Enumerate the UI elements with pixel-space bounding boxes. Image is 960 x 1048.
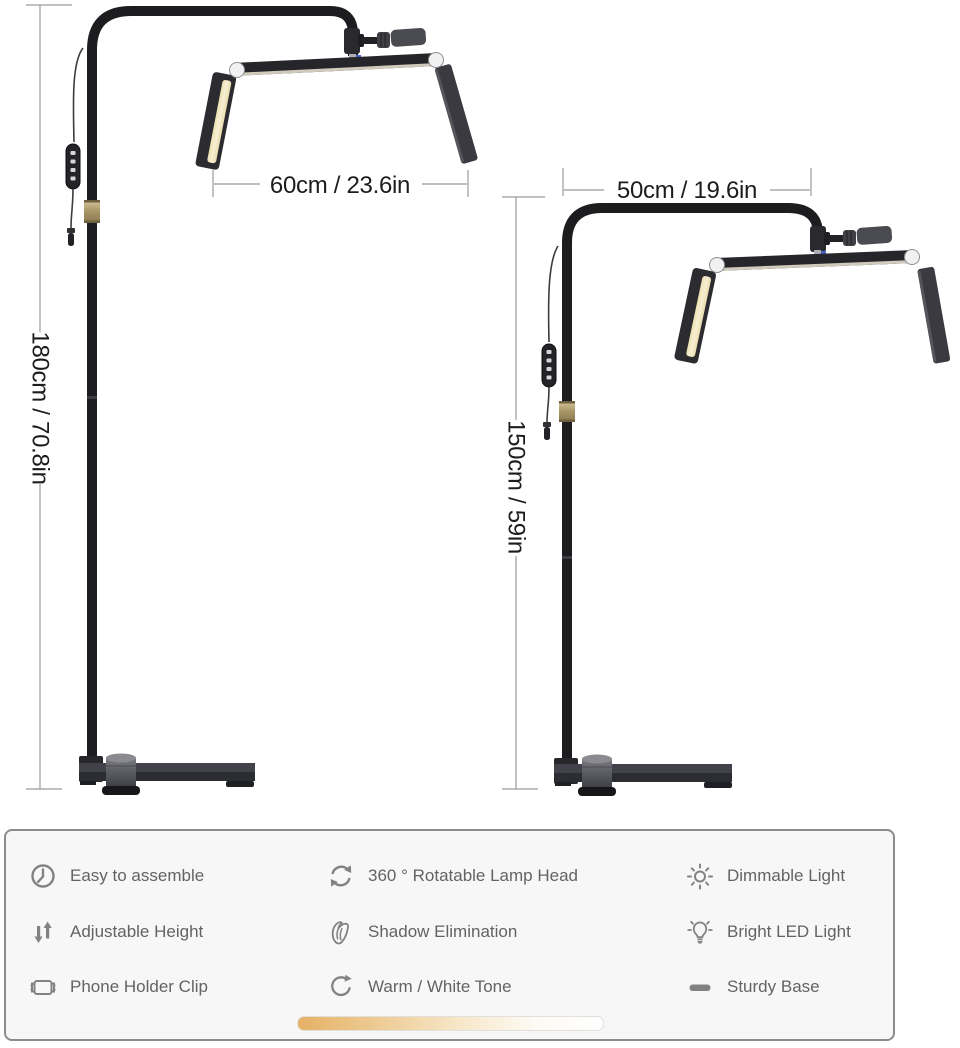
feature-easy-to-assemble: Easy to assemble bbox=[28, 860, 204, 892]
feature-phone-holder-clip: Phone Holder Clip bbox=[28, 971, 208, 1003]
shadow-elimination-icon bbox=[326, 917, 356, 947]
feature-label: Warm / White Tone bbox=[368, 977, 512, 997]
lamp-right-ball-joint-right bbox=[905, 250, 920, 265]
feature-label: Adjustable Height bbox=[70, 922, 203, 942]
feature-label: Phone Holder Clip bbox=[70, 977, 208, 997]
feature-warm-white-tone: Warm / White Tone bbox=[326, 971, 512, 1003]
lamp-right-base bbox=[554, 755, 732, 797]
feature-dimmable-light: Dimmable Light bbox=[685, 860, 845, 892]
lamp-right-height-label: 150cm / 59in bbox=[503, 420, 530, 554]
lamp-left-height-label: 180cm / 70.8in bbox=[27, 331, 54, 484]
lamp-right-led-bar-right bbox=[917, 266, 950, 363]
lamp-left-power-plug bbox=[67, 228, 75, 246]
feature-label: Sturdy Base bbox=[727, 977, 820, 997]
lamp-left-remote-control bbox=[66, 48, 83, 246]
lamp-left-led-bar-right bbox=[434, 64, 478, 165]
lamp-left-gold-collar bbox=[84, 200, 100, 223]
lamp-left-ball-joint-right bbox=[429, 53, 444, 68]
feature-rotatable-lamp-head: 360 ° Rotatable Lamp Head bbox=[326, 860, 578, 892]
lamp-right: 50cm / 19.6in 150cm / 59in bbox=[502, 168, 951, 796]
features-panel: Easy to assemble Adjustable Height Phone… bbox=[4, 829, 895, 1041]
feature-sturdy-base: Sturdy Base bbox=[685, 971, 820, 1003]
bright-led-icon bbox=[685, 917, 715, 947]
feature-label: Shadow Elimination bbox=[368, 922, 517, 942]
lamp-right-gold-collar bbox=[559, 401, 575, 422]
feature-label: Bright LED Light bbox=[727, 922, 851, 942]
sturdy-base-icon bbox=[685, 972, 715, 1002]
adjustable-height-icon bbox=[28, 917, 58, 947]
feature-label: 360 ° Rotatable Lamp Head bbox=[368, 866, 578, 886]
lamp-right-head bbox=[674, 250, 951, 365]
feature-label: Dimmable Light bbox=[727, 866, 845, 886]
feature-shadow-elimination: Shadow Elimination bbox=[326, 916, 517, 948]
phone-holder-clip-icon bbox=[28, 972, 58, 1002]
product-diagram: 180cm / 70.8in bbox=[0, 0, 960, 828]
lamp-left-width-label: 60cm / 23.6in bbox=[270, 172, 410, 199]
lamp-left-head bbox=[195, 53, 478, 171]
feature-label: Easy to assemble bbox=[70, 866, 204, 886]
lamp-right-led-bar-left bbox=[674, 267, 717, 364]
dimmable-light-icon bbox=[685, 861, 715, 891]
lamp-left-ball-joint-left bbox=[230, 63, 245, 78]
warm-white-tone-icon bbox=[326, 972, 356, 1002]
feature-adjustable-height: Adjustable Height bbox=[28, 916, 203, 948]
lamp-right-ball-joint-left bbox=[710, 258, 725, 273]
lamp-right-remote-control bbox=[542, 246, 558, 440]
lamp-right-power-plug bbox=[543, 422, 551, 440]
lamp-left: 180cm / 70.8in bbox=[26, 5, 478, 795]
lamp-left-led-bar-left bbox=[195, 72, 237, 171]
clock-icon bbox=[28, 861, 58, 891]
lamp-right-width-label: 50cm / 19.6in bbox=[617, 177, 757, 204]
rotate-icon bbox=[326, 861, 356, 891]
lamp-left-base bbox=[79, 754, 255, 796]
warm-white-gradient-bar bbox=[297, 1016, 604, 1031]
feature-bright-led-light: Bright LED Light bbox=[685, 916, 851, 948]
